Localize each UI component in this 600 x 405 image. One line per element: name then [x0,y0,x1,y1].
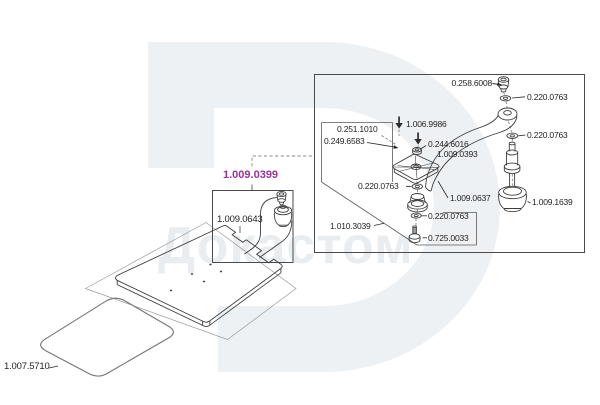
part-label-screw-top[interactable]: 1.006.9986 [406,120,447,129]
diagram-canvas [0,0,600,405]
part-label-nut[interactable]: 0.244.6016 [428,140,469,149]
plate-holes [170,264,222,292]
part-label-mat[interactable]: 1.007.5710 [4,362,50,372]
plate-drawing [116,225,283,326]
part-label-screw-plate[interactable]: 1.009.0393 [437,150,478,159]
part-label-bolt[interactable]: 0.725.0033 [428,234,469,243]
part-label-foot[interactable]: 1.009.1639 [532,198,573,207]
part-label-washer-2[interactable]: 0.220.0763 [527,131,568,140]
part-label-arm[interactable]: 1.009.0637 [450,194,491,203]
mat-drawing [41,298,174,376]
detail-link-dashed-line [252,156,314,167]
part-label-base-assembly[interactable]: 1.010.3039 [330,222,371,231]
part-label-bracket-lower[interactable]: 0.249.6583 [324,137,365,146]
part-label-washer-1[interactable]: 0.220.0763 [527,93,568,102]
part-label-washer-3[interactable]: 0.220.0763 [358,182,399,191]
rubber-foot-drawing [499,186,527,211]
mat-pointer-line [49,366,58,368]
arrow-line [493,84,498,85]
part-label-cap-screw[interactable]: 0.258.6008 [438,79,492,88]
assembly-axis-dashed [382,92,513,227]
bracket-arrowhead [394,145,399,148]
parts-diagram-page: Докастом [0,0,600,405]
part-label-washer-4[interactable]: 0.220.0763 [428,212,469,221]
mount-plate-drawing [393,154,439,183]
part-label-plate[interactable]: 1.009.0643 [217,215,263,225]
part-label-bracket-upper[interactable]: 0.251.1010 [337,125,378,134]
part-label-assembly-highlighted[interactable]: 1.009.0399 [223,170,278,181]
lower-stack-drawing [408,184,428,243]
